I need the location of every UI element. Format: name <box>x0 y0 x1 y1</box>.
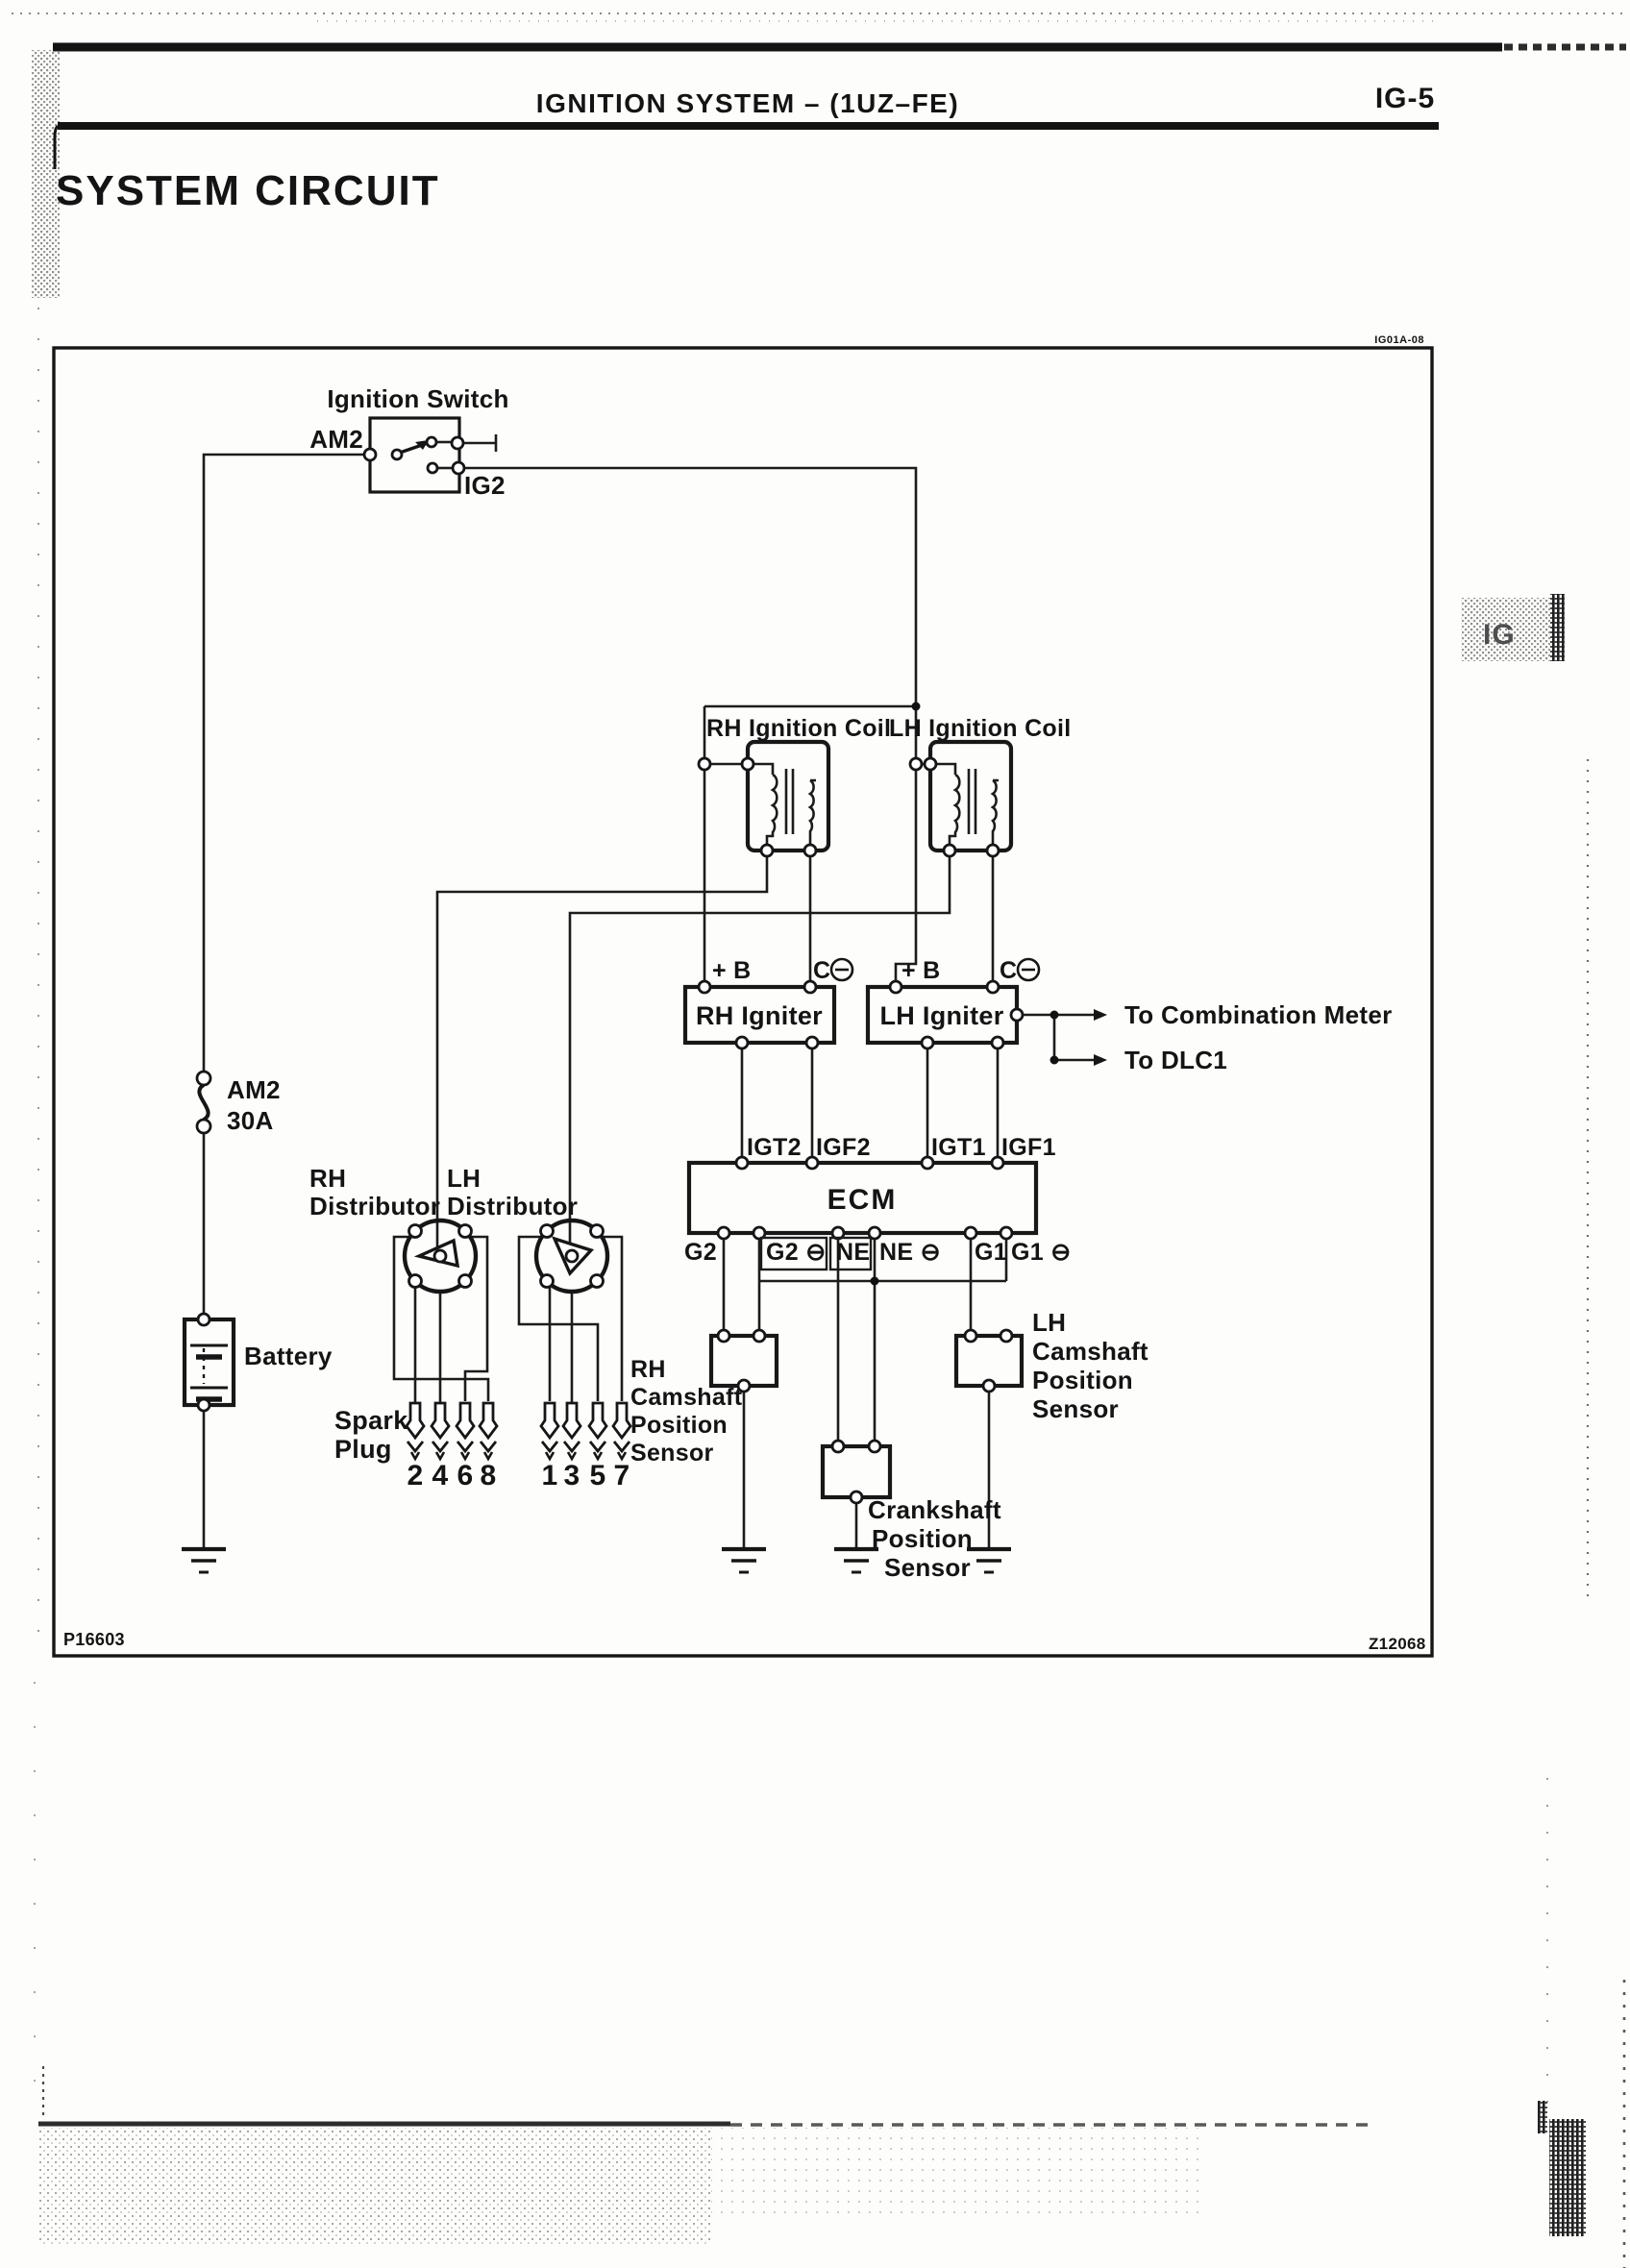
ignition-switch-label: Ignition Switch <box>327 384 508 413</box>
ecm-pin-g1: G1 <box>975 1239 1007 1266</box>
spark-plug-icon <box>457 1403 474 1459</box>
rh-circled-minus-icon <box>831 959 852 980</box>
ecm-pin-igt1: IGT1 <box>931 1134 986 1161</box>
plug-number: 3 <box>564 1460 580 1491</box>
rh-plus-b-label: + B <box>712 957 752 984</box>
arrow-to-combination-meter <box>1094 1009 1107 1021</box>
lh-coil-icon <box>925 742 1011 856</box>
ground-icon <box>722 1549 766 1572</box>
plug-number: 1 <box>542 1460 558 1491</box>
page-header: IGNITION SYSTEM – (1UZ–FE) IG-5 SYSTEM C… <box>53 47 1626 214</box>
lh-plus-b-label: + B <box>901 957 941 984</box>
plug-number: 7 <box>614 1460 630 1491</box>
lh-cam-label-1: LH <box>1032 1308 1066 1337</box>
fuse-name: AM2 <box>227 1075 281 1104</box>
arrow-to-dlc1 <box>1094 1054 1107 1066</box>
ig2-terminal-label: IG2 <box>464 471 506 500</box>
spark-plug-label-2: Plug <box>334 1435 392 1464</box>
lh-cam-label-4: Sensor <box>1032 1394 1119 1423</box>
fuse-rating: 30A <box>227 1106 274 1135</box>
battery: Battery <box>185 1314 333 1411</box>
rh-cam-label-1: RH <box>630 1356 666 1383</box>
spark-plug-icon <box>613 1403 630 1459</box>
lh-circled-minus-icon <box>1018 959 1039 980</box>
ecm-pin-igf1: IGF1 <box>1001 1134 1056 1161</box>
rh-coil-label: RH Ignition Coil <box>706 715 891 742</box>
lh-camshaft-position-sensor: LH Camshaft Position Sensor <box>956 1308 1148 1423</box>
spark-plug-icon <box>480 1403 497 1459</box>
rh-cam-label-2: Camshaft <box>630 1384 743 1411</box>
to-combination-meter-label: To Combination Meter <box>1124 1000 1393 1029</box>
rh-cam-label-4: Sensor <box>630 1440 714 1467</box>
diagram-code: IG01A-08 <box>1374 334 1424 346</box>
rh-c-label: C <box>813 957 830 984</box>
am2-terminal-label: AM2 <box>309 425 363 454</box>
to-dlc1-label: To DLC1 <box>1124 1046 1227 1074</box>
rh-igniter-label: RH Igniter <box>696 1001 823 1030</box>
figure-code-bottom-left: P16603 <box>63 1630 125 1649</box>
ecm-pin-ne-minus: NE ⊖ <box>879 1239 941 1266</box>
plug-number: 4 <box>432 1460 449 1491</box>
lh-distributor-label-1: LH <box>447 1164 481 1193</box>
ecm-label: ECM <box>827 1184 898 1216</box>
lh-cam-label-3: Position <box>1032 1366 1133 1394</box>
crank-label-2: Position <box>872 1524 973 1553</box>
crank-label-3: Sensor <box>884 1553 971 1582</box>
crank-label-1: Crankshaft <box>868 1495 1001 1524</box>
ecm-pin-g1-minus: G1 ⊖ <box>1011 1239 1071 1266</box>
plug-number: 2 <box>407 1460 424 1491</box>
rh-ignition-coil: RH Ignition Coil <box>706 715 891 856</box>
ecm-pin-g2: G2 <box>684 1239 717 1266</box>
rh-cam-label-3: Position <box>630 1412 728 1439</box>
manual-page: IGNITION SYSTEM – (1UZ–FE) IG-5 SYSTEM C… <box>0 0 1630 2268</box>
system-circuit-figure: IGNITION SYSTEM – (1UZ–FE) IG-5 SYSTEM C… <box>0 0 1630 2268</box>
ecm-pin-g2-minus: G2 ⊖ <box>766 1239 826 1266</box>
rh-distributor-label-2: Distributor <box>309 1192 440 1220</box>
ground-icon <box>967 1549 1011 1572</box>
rh-igniter: RH Igniter + B C <box>685 957 852 1048</box>
lh-igniter-label: LH Igniter <box>880 1001 1004 1030</box>
rh-distributor-label-1: RH <box>309 1164 346 1193</box>
page-number: IG-5 <box>1375 83 1435 114</box>
ecm-pin-igt2: IGT2 <box>747 1134 802 1161</box>
spark-plug-icon <box>589 1403 606 1459</box>
rh-coil-icon <box>742 742 828 856</box>
lh-distributor-label-2: Distributor <box>447 1192 578 1220</box>
spark-plug-icon <box>407 1403 424 1459</box>
section-title: SYSTEM CIRCUIT <box>56 167 440 214</box>
ecm-pin-igf2: IGF2 <box>816 1134 871 1161</box>
ecm-pin-ne: NE <box>836 1239 870 1266</box>
plug-number: 6 <box>457 1460 474 1491</box>
spark-plug-label-1: Spark <box>334 1406 408 1435</box>
fuse-am2: AM2 30A <box>197 1072 281 1135</box>
lh-cam-label-2: Camshaft <box>1032 1337 1148 1366</box>
fuse-icon <box>199 1085 208 1120</box>
lh-igniter: LH Igniter + B C <box>868 957 1039 1048</box>
lh-coil-label: LH Ignition Coil <box>889 715 1071 742</box>
figure-code-bottom-right: Z12068 <box>1369 1635 1425 1653</box>
side-tab: IG <box>1461 594 1565 661</box>
rh-camshaft-position-sensor: RH Camshaft Position Sensor <box>630 1330 777 1467</box>
ignition-switch: Ignition Switch AM2 IG2 <box>309 384 508 500</box>
spark-plug-icon <box>541 1403 558 1459</box>
spark-plug-icon <box>432 1403 449 1459</box>
side-tab-label: IG <box>1483 619 1516 651</box>
ground-icon <box>182 1549 226 1572</box>
plug-number: 8 <box>481 1460 497 1491</box>
header-title: IGNITION SYSTEM – (1UZ–FE) <box>536 88 959 118</box>
spark-plug-icon <box>563 1403 580 1459</box>
battery-label: Battery <box>244 1342 333 1370</box>
lh-c-label: C <box>1000 957 1017 984</box>
spark-plugs: Spark Plug 2 4 6 8 1 3 5 7 <box>334 1403 630 1491</box>
plug-number: 5 <box>590 1460 606 1491</box>
